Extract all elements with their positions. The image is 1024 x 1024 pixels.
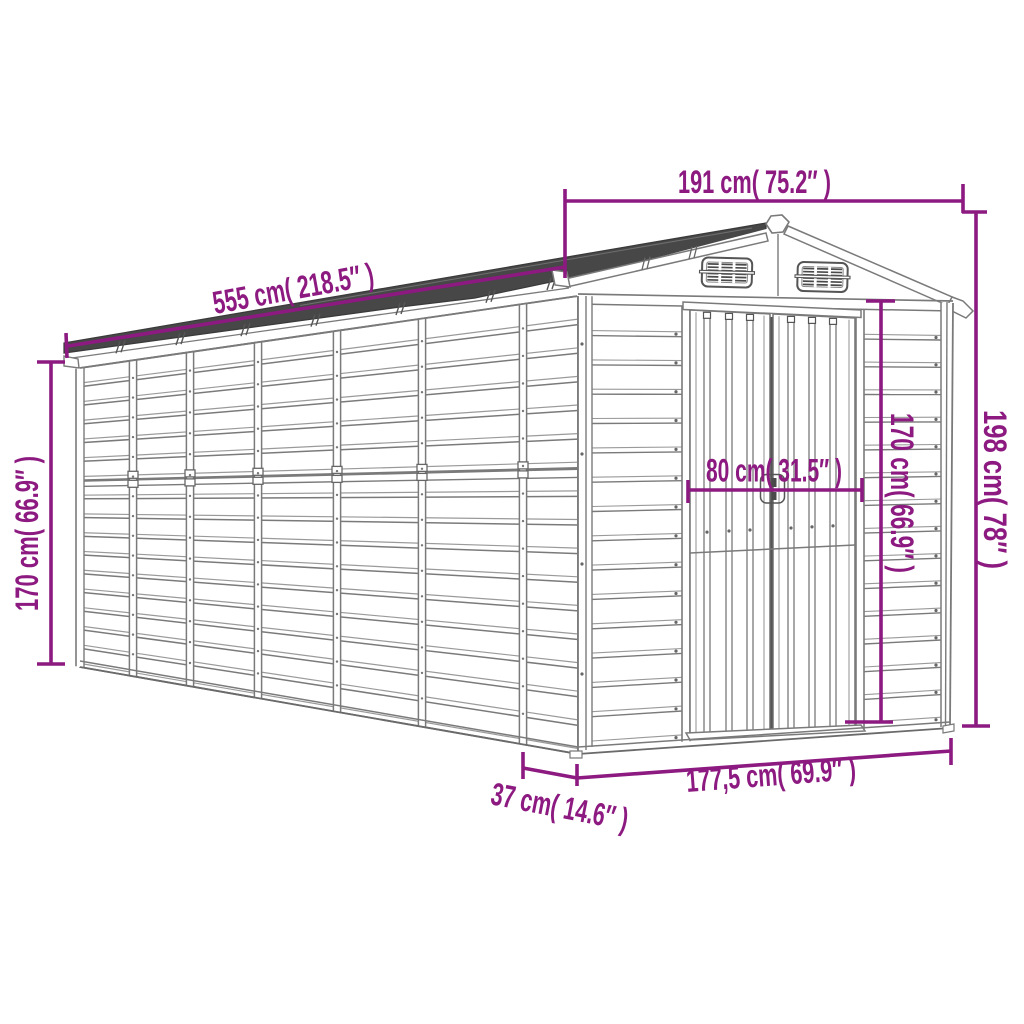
- svg-text:170 cm( 66.9″ ): 170 cm( 66.9″ ): [9, 456, 45, 611]
- svg-text:80 cm( 31.5″ ): 80 cm( 31.5″ ): [706, 453, 842, 489]
- svg-text:191 cm( 75.2″ ): 191 cm( 75.2″ ): [678, 164, 831, 200]
- svg-text:198 cm( 78″ ): 198 cm( 78″ ): [977, 410, 1013, 569]
- svg-text:170 cm( 66.9″ ): 170 cm( 66.9″ ): [884, 413, 920, 573]
